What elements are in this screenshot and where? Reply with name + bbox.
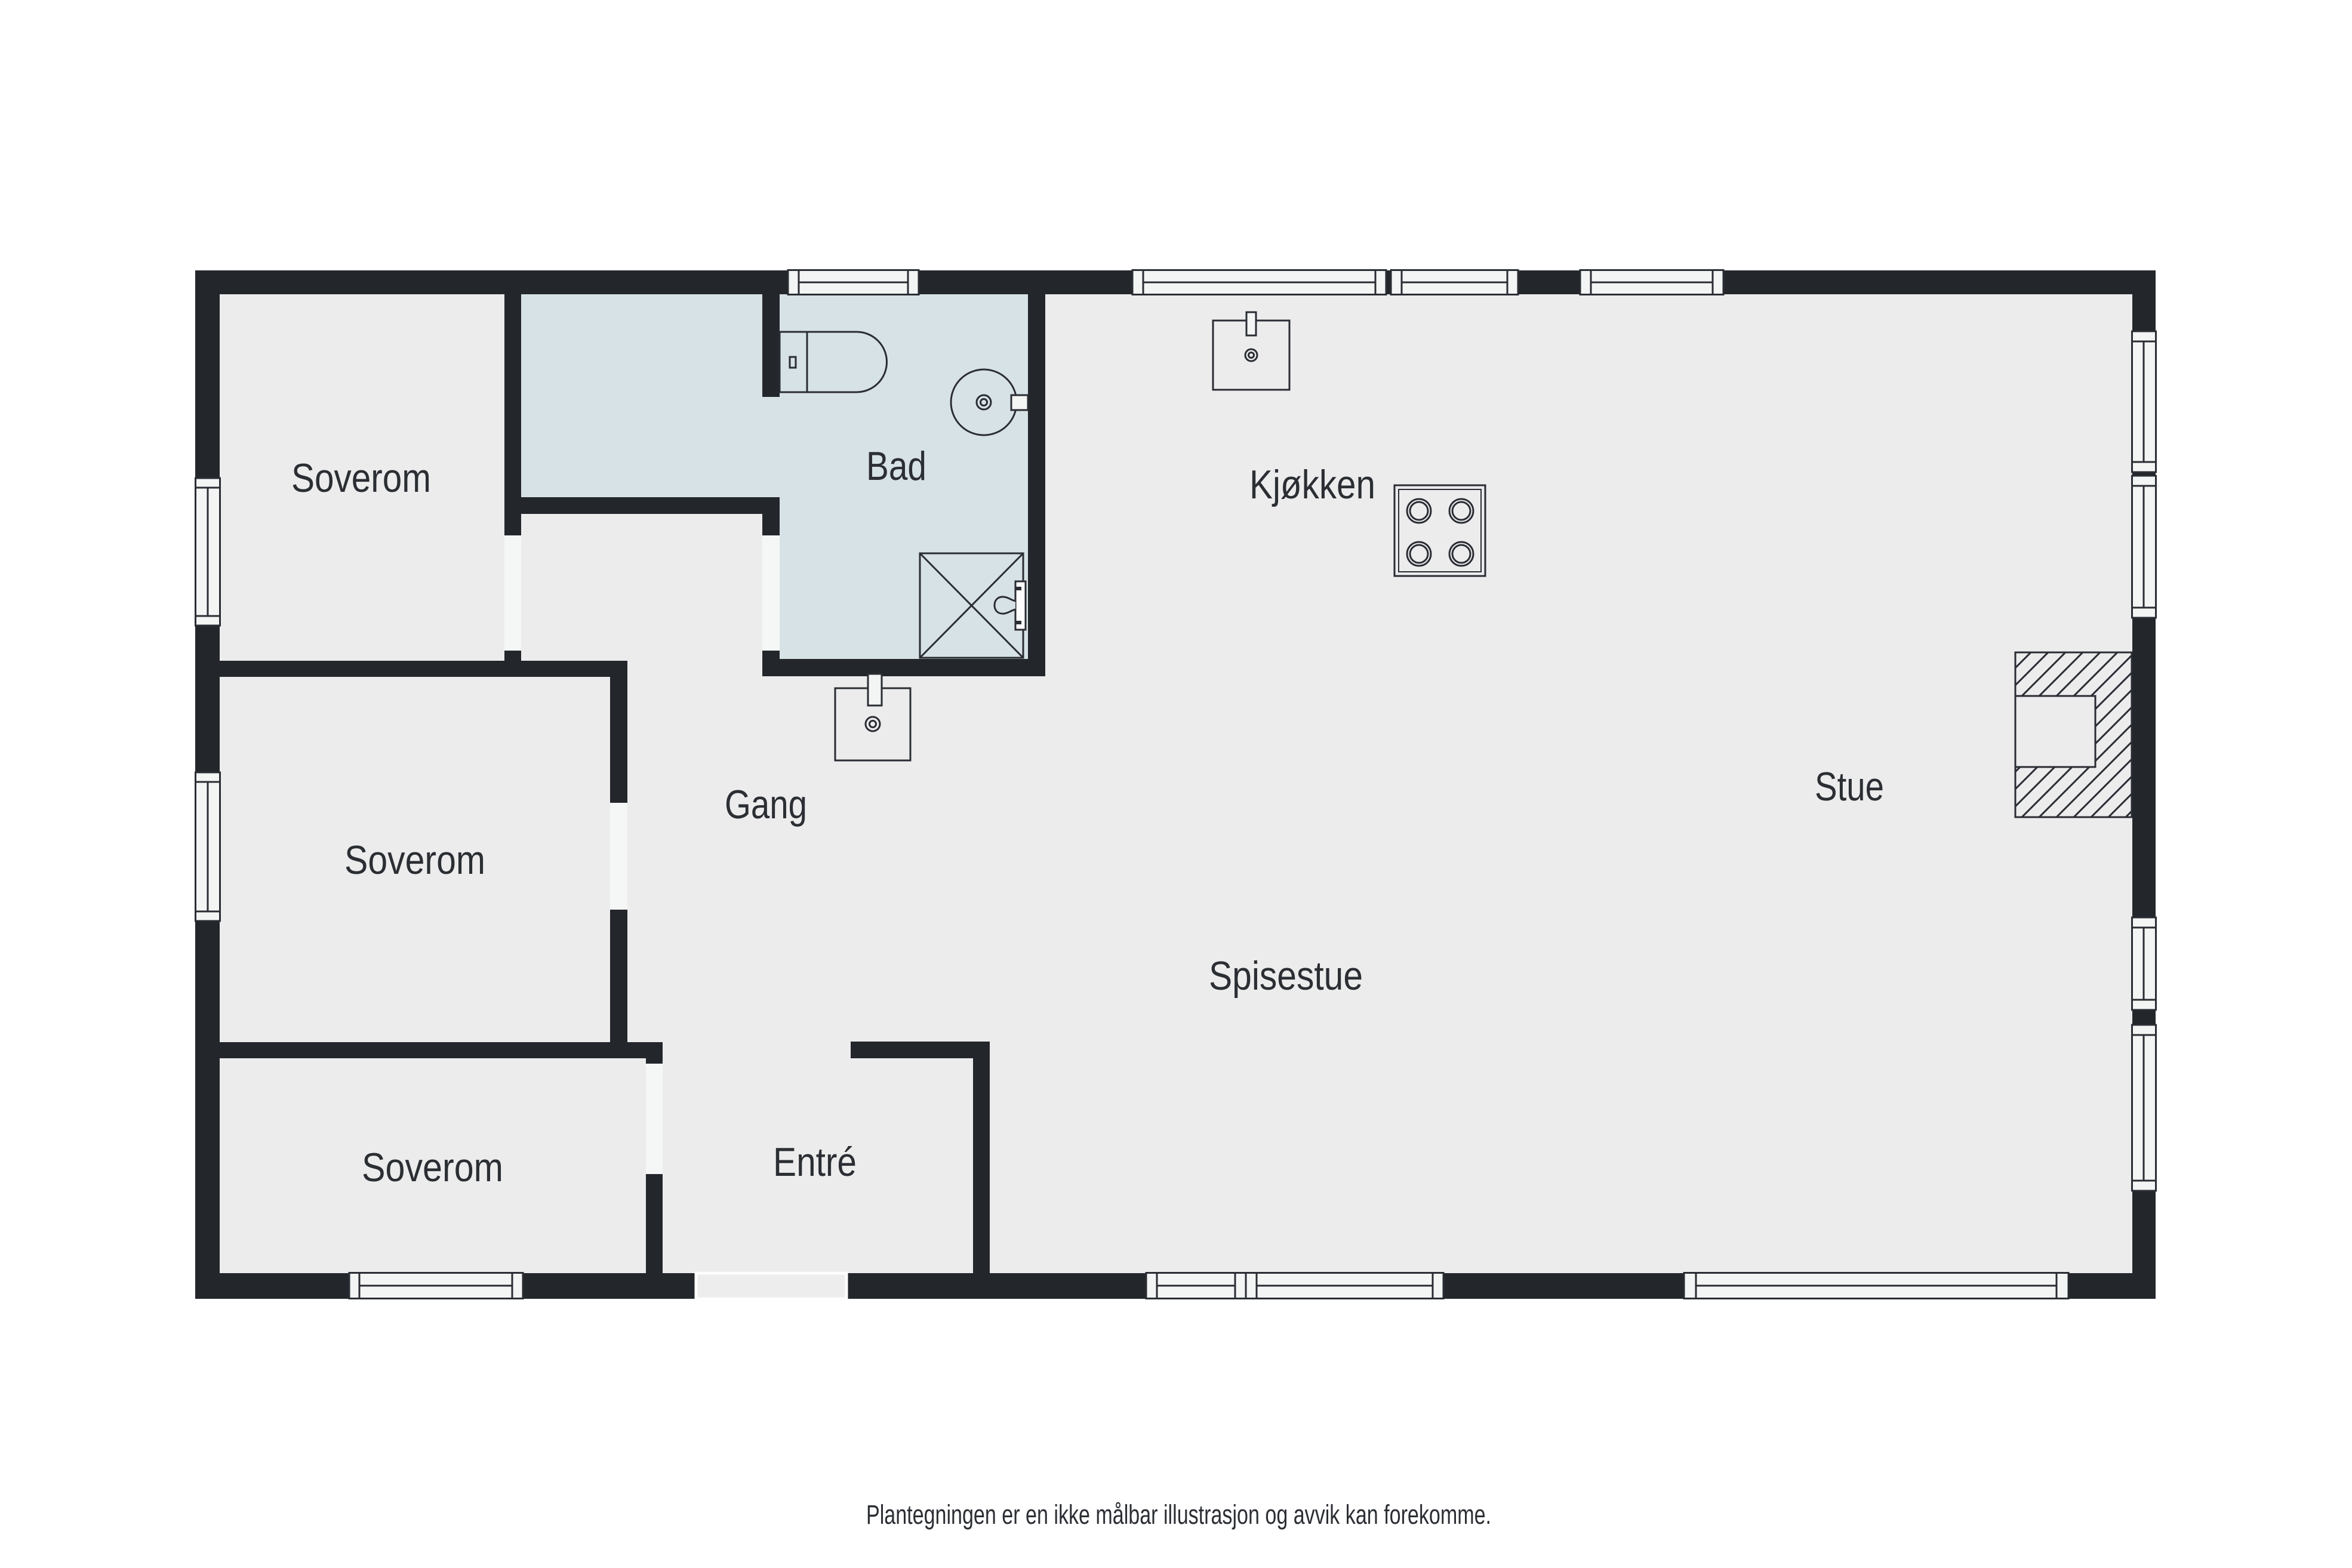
svg-text:Bad: Bad [866,443,926,489]
svg-text:Soverom: Soverom [362,1145,503,1190]
svg-text:Entré: Entré [773,1139,857,1185]
svg-text:Spisestue: Spisestue [1209,953,1363,999]
svg-text:Soverom: Soverom [344,837,485,883]
svg-text:Gang: Gang [725,782,807,827]
svg-text:Soverom: Soverom [291,455,431,501]
svg-text:Plantegningen er en ikke målba: Plantegningen er en ikke målbar illustra… [866,1499,1491,1530]
svg-text:Stue: Stue [1815,764,1884,809]
svg-text:Kjøkken: Kjøkken [1249,462,1375,507]
